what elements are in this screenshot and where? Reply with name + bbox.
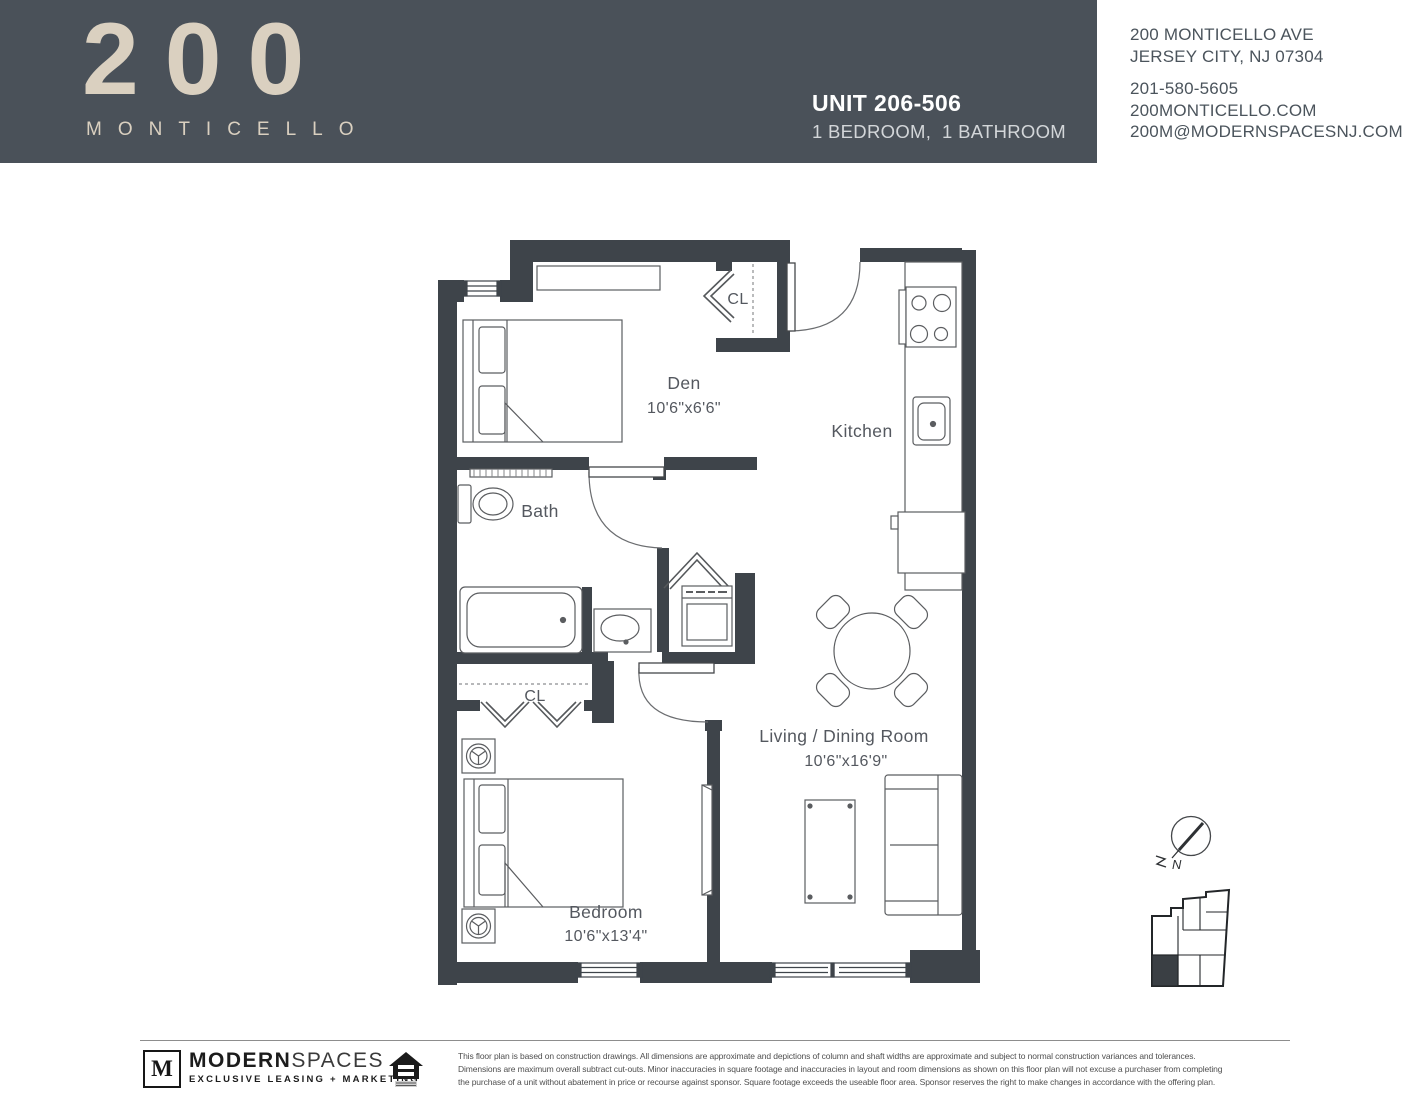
modern-spaces-tagline: EXCLUSIVE LEASING + MARKETING bbox=[189, 1074, 420, 1085]
hvac-icon bbox=[462, 909, 495, 943]
den-bed bbox=[463, 320, 622, 442]
toilet bbox=[458, 485, 513, 523]
living-window-left bbox=[770, 963, 833, 977]
bedroom-closet-doors bbox=[481, 702, 581, 727]
modern-spaces-monogram: M bbox=[143, 1050, 181, 1088]
living-dims: 10'6"x16'9" bbox=[804, 753, 887, 770]
bath-label: Bath bbox=[521, 501, 559, 521]
bathtub bbox=[460, 587, 582, 653]
tv bbox=[702, 785, 712, 895]
kitchen-fixtures bbox=[891, 262, 965, 590]
kitchen-label: Kitchen bbox=[831, 421, 892, 441]
modern-spaces-logo: M MODERNSPACES EXCLUSIVE LEASING + MARKE… bbox=[143, 1050, 420, 1088]
floorplan-flyer: 200 MONTICELLO UNIT 206-506 1 BEDROOM, 1… bbox=[0, 0, 1428, 1098]
equal-housing-icon bbox=[388, 1051, 424, 1089]
entry-closet-label: CL bbox=[727, 291, 748, 308]
den-shelf bbox=[537, 266, 660, 290]
bedroom-label: Bedroom bbox=[569, 902, 643, 922]
kitchen-sink bbox=[913, 397, 950, 445]
modern-spaces-name: MODERNSPACES bbox=[189, 1050, 420, 1072]
north-arrow bbox=[1156, 856, 1166, 867]
shower-rod bbox=[470, 469, 552, 477]
bath-fixtures bbox=[458, 469, 732, 653]
hvac-icon bbox=[462, 739, 495, 773]
dining-table bbox=[834, 613, 910, 689]
den-dims: 10'6"x6'6" bbox=[647, 400, 721, 417]
disclaimer-line: This floor plan is based on construction… bbox=[458, 1050, 1303, 1063]
footer-divider bbox=[140, 1040, 1290, 1041]
bedroom-closet-label: CL bbox=[524, 688, 545, 705]
bedroom-dims: 10'6"x13'4" bbox=[564, 928, 647, 945]
den-label: Den bbox=[667, 373, 700, 393]
compass: N bbox=[1156, 817, 1211, 873]
sofa bbox=[885, 775, 962, 915]
laundry-bifold-door bbox=[664, 553, 730, 589]
disclaimer-line: Dimensions are maximum overall subtract … bbox=[458, 1063, 1303, 1076]
building-keyplan bbox=[1152, 890, 1229, 986]
vanity-sink bbox=[594, 609, 651, 652]
washer-dryer bbox=[682, 586, 732, 646]
den-window bbox=[463, 281, 501, 296]
entry-door bbox=[787, 262, 860, 331]
bedroom-bed bbox=[464, 779, 623, 907]
bedroom-door bbox=[639, 663, 714, 722]
stove bbox=[899, 287, 956, 347]
living-window-right bbox=[831, 963, 911, 977]
disclaimer-text: This floor plan is based on construction… bbox=[458, 1050, 1303, 1088]
disclaimer-line: the purchase of a unit without abatement… bbox=[458, 1076, 1303, 1089]
refrigerator bbox=[891, 512, 965, 573]
floorplan-drawing: Den 10'6"x6'6" Kitchen Bath CL CL Living… bbox=[0, 0, 1428, 1098]
unit-location-highlight bbox=[1152, 955, 1178, 986]
compass-north-label: N bbox=[1172, 857, 1182, 872]
coffee-table bbox=[805, 800, 855, 903]
bath-door bbox=[589, 467, 664, 548]
living-label: Living / Dining Room bbox=[759, 726, 928, 746]
bedroom-window bbox=[576, 963, 642, 977]
